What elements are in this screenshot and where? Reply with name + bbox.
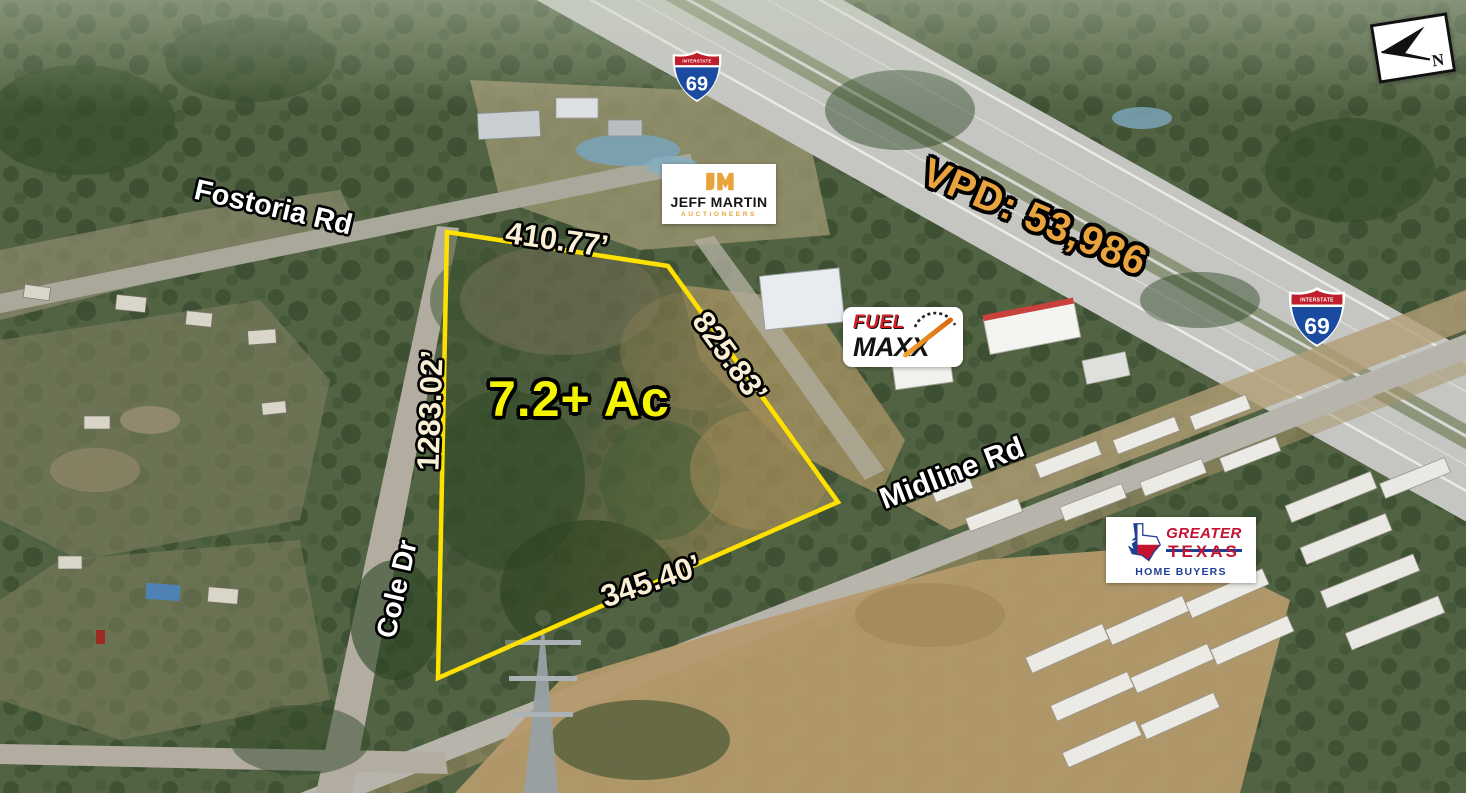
interstate-69-shield-top: INTERSTATE 69 (671, 49, 723, 103)
fuel-maxx-logo: FUEL MAXX (843, 307, 963, 367)
north-arrow-icon: N (1373, 16, 1453, 81)
jeff-martin-logo: JEFF MARTIN AUCTIONEERS (662, 164, 776, 224)
svg-text:69: 69 (686, 74, 708, 96)
greater-texas-word3: HOME BUYERS (1135, 566, 1226, 578)
jm-monogram-icon (703, 171, 735, 193)
svg-text:69: 69 (1304, 313, 1330, 339)
greater-texas-word2: TEXAS (1166, 542, 1242, 562)
fuel-maxx-word1: FUEL (853, 312, 905, 334)
red-vehicle (96, 630, 105, 644)
compass-box: N (1370, 12, 1456, 83)
svg-text:INTERSTATE: INTERSTATE (682, 59, 711, 64)
blue-roof-house (145, 583, 180, 601)
interstate-69-shield-right: INTERSTATE 69 (1285, 286, 1349, 348)
greater-texas-logo: GREATER TEXAS HOME BUYERS (1106, 517, 1256, 583)
texas-flag-map-icon (1120, 522, 1162, 564)
aerial-property-map: Fostoria Rd 410.77’ 825.83’ 1283.02’ 345… (0, 0, 1466, 793)
greater-texas-word1: GREATER (1166, 525, 1242, 542)
compass-n-label: N (1431, 50, 1446, 71)
svg-text:INTERSTATE: INTERSTATE (1300, 298, 1334, 304)
jeff-martin-title: JEFF MARTIN (671, 194, 768, 210)
aerial-photo-background (0, 0, 1466, 793)
jeff-martin-subtitle: AUCTIONEERS (681, 211, 757, 218)
